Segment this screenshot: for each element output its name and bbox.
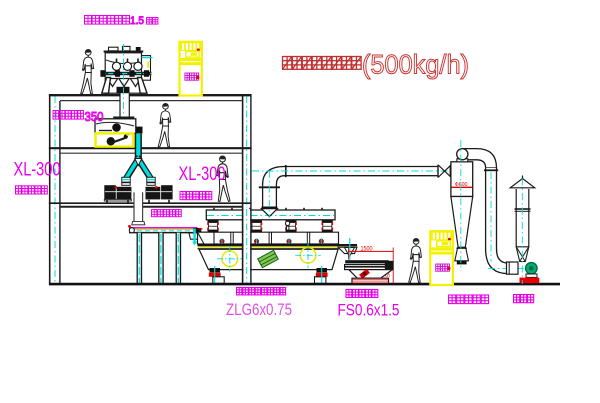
svg-text:1500: 1500 (361, 246, 373, 253)
svg-text:FS0.6x1.5: FS0.6x1.5 (338, 301, 400, 320)
svg-text:350: 350 (85, 109, 104, 124)
svg-text:XL-300: XL-300 (14, 160, 61, 181)
svg-text:XL-300: XL-300 (179, 164, 226, 185)
svg-text:1.5: 1.5 (130, 15, 144, 27)
svg-text:ZLG6x0.75: ZLG6x0.75 (226, 300, 292, 319)
svg-text:(500kg/h): (500kg/h) (362, 50, 469, 80)
